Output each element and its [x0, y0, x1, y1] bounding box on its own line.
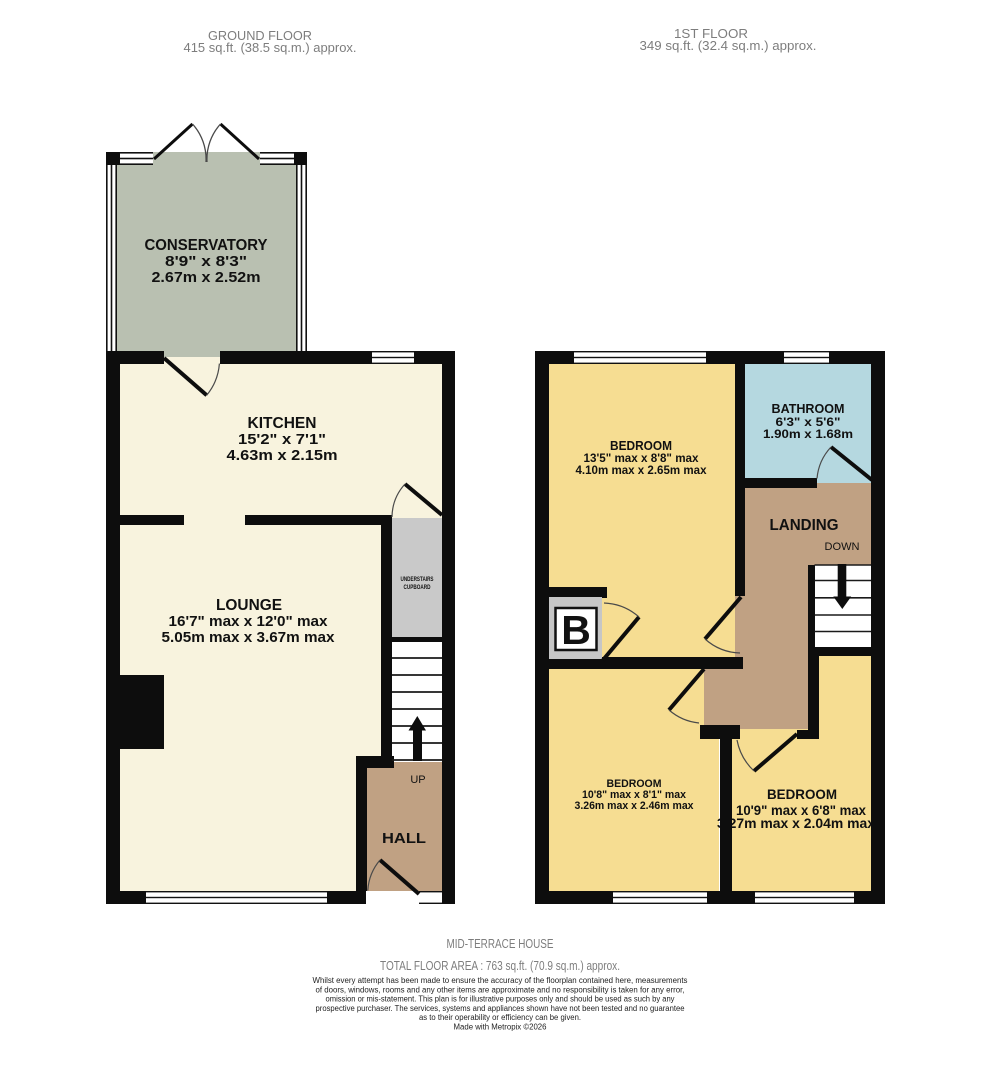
svg-text:4.63m x 2.15m: 4.63m x 2.15m [227, 447, 338, 464]
svg-text:2.67m x 2.52m: 2.67m x 2.52m [152, 269, 261, 286]
svg-text:DOWN: DOWN [825, 541, 860, 553]
svg-text:BATHROOM: BATHROOM [772, 402, 845, 416]
svg-text:CONSERVATORY: CONSERVATORY [145, 237, 268, 254]
svg-text:UP: UP [410, 774, 425, 786]
svg-text:prospective purchaser. The ser: prospective purchaser. The services, sys… [316, 1004, 686, 1013]
svg-text:B: B [561, 607, 591, 653]
svg-text:CUPBOARD: CUPBOARD [404, 585, 432, 591]
svg-text:16'7" max x 12'0" max: 16'7" max x 12'0" max [169, 613, 329, 630]
svg-text:1.90m x 1.68m: 1.90m x 1.68m [763, 427, 853, 441]
svg-text:MID-TERRACE HOUSE: MID-TERRACE HOUSE [447, 937, 554, 951]
svg-text:HALL: HALL [382, 830, 426, 847]
svg-text:349 sq.ft. (32.4 sq.m.) approx: 349 sq.ft. (32.4 sq.m.) approx. [640, 38, 817, 53]
svg-text:415 sq.ft. (38.5 sq.m.) approx: 415 sq.ft. (38.5 sq.m.) approx. [184, 40, 357, 55]
svg-text:8'9" x 8'3": 8'9" x 8'3" [165, 253, 247, 270]
svg-text:omission or mis-statement. Thi: omission or mis-statement. This plan is … [326, 995, 675, 1004]
svg-text:as to their operability or eff: as to their operability or efficiency ca… [419, 1013, 581, 1022]
svg-text:LOUNGE: LOUNGE [216, 597, 282, 614]
svg-text:Whilst every attempt has been: Whilst every attempt has been made to en… [313, 976, 688, 985]
svg-text:of doors, windows, rooms and a: of doors, windows, rooms and any other i… [316, 985, 685, 994]
svg-text:4.10m max x 2.65m max: 4.10m max x 2.65m max [576, 463, 707, 477]
svg-text:BEDROOM: BEDROOM [767, 786, 837, 802]
svg-text:3.27m max x 2.04m max: 3.27m max x 2.04m max [717, 815, 875, 831]
svg-text:3.26m max x 2.46m max: 3.26m max x 2.46m max [575, 800, 695, 812]
svg-text:5.05m max x 3.67m max: 5.05m max x 3.67m max [162, 629, 336, 646]
svg-text:UNDERSTAIRS: UNDERSTAIRS [401, 577, 434, 583]
svg-text:TOTAL FLOOR AREA : 763 sq.ft.: TOTAL FLOOR AREA : 763 sq.ft. (70.9 sq.m… [380, 958, 620, 973]
svg-text:15'2" x 7'1": 15'2" x 7'1" [238, 431, 326, 448]
svg-text:Made with Metropix ©2026: Made with Metropix ©2026 [454, 1023, 548, 1032]
svg-text:KITCHEN: KITCHEN [248, 415, 317, 432]
svg-text:LANDING: LANDING [770, 517, 839, 534]
